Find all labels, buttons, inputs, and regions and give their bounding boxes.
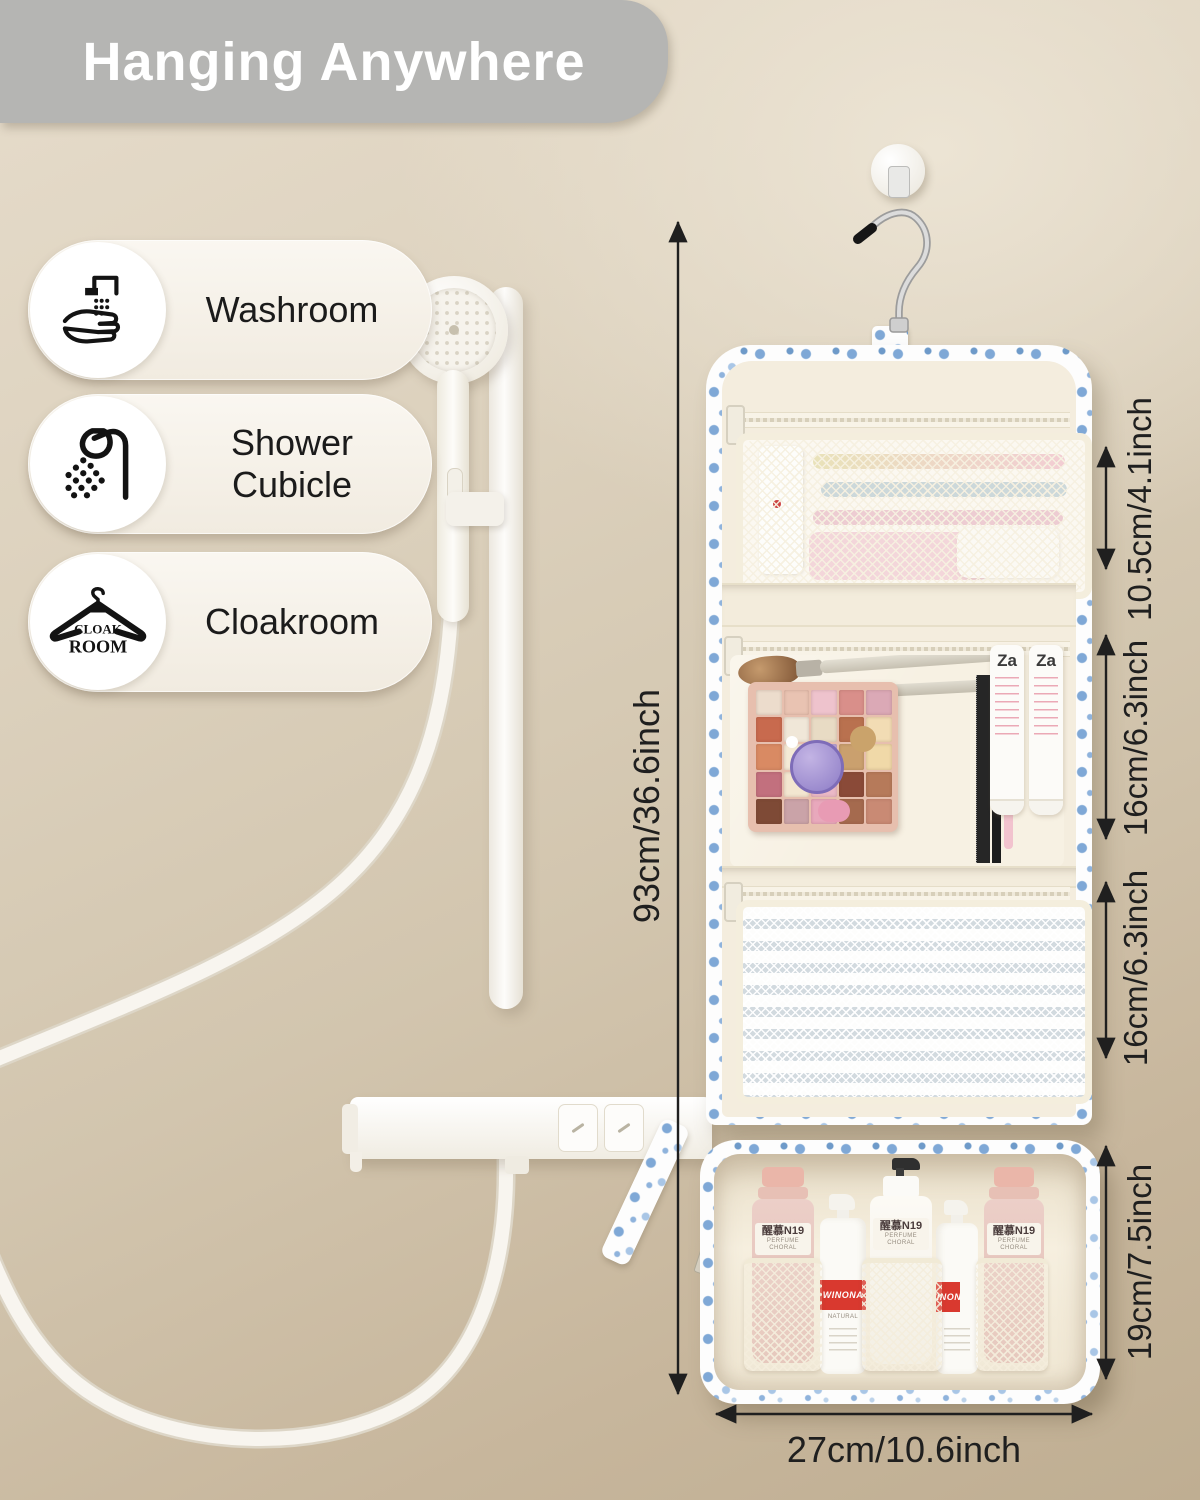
winona-sub: NATURAL — [820, 1314, 866, 1321]
eyeliner-1 — [976, 675, 990, 863]
white-tube — [957, 528, 1059, 578]
palette-swatch — [866, 799, 892, 824]
palette-swatch — [756, 772, 782, 797]
za-tube-2: Za — [1029, 645, 1063, 815]
banner: Hanging Anywhere — [0, 0, 668, 123]
top-mesh-pocket — [736, 433, 1092, 599]
lower-mesh-pocket — [736, 900, 1092, 1104]
cloak-badge-line1: CLOAK — [74, 621, 123, 636]
palette-swatch — [784, 799, 810, 824]
bottle-label: 醒慕N19 PERFUME CHORAL — [873, 1218, 929, 1250]
palette-swatch — [756, 717, 782, 742]
feature-label-shower-cubicle: Shower Cubicle — [166, 422, 432, 506]
mixer-button-2 — [604, 1104, 644, 1152]
pouch-mesh-cup-3 — [976, 1258, 1048, 1371]
fold-seam-2 — [722, 866, 1076, 888]
dim-bottom-pouch: 19cm/7.5inch — [1121, 1164, 1159, 1360]
wash-hands-icon — [30, 242, 166, 378]
palette-sticker-strawberry — [818, 800, 850, 822]
za-tube-1: Za — [990, 645, 1024, 815]
palette-sticker-flower — [786, 736, 798, 748]
palette-swatch — [756, 744, 782, 769]
feature-pill-cloakroom: CLOAK ROOM Cloakroom — [28, 552, 432, 692]
feature-pill-washroom: Washroom — [28, 240, 432, 380]
palette-sticker-ball — [790, 740, 844, 794]
mixer-hose-connector — [505, 1156, 529, 1174]
feature-label-cloakroom: Cloakroom — [166, 601, 432, 643]
coat-hanger-icon: CLOAK ROOM — [30, 554, 166, 690]
dim-lower-pocket: 16cm/6.3inch — [1117, 870, 1155, 1066]
winona-label: WINONA — [820, 1280, 866, 1310]
mixer-spout — [350, 1152, 362, 1172]
palette-swatch — [756, 799, 782, 824]
shower-head-center — [449, 325, 459, 335]
dim-top-pocket: 10.5cm/4.1inch — [1121, 397, 1159, 621]
fold-seam-1 — [722, 583, 1076, 627]
toothbrush-1 — [813, 454, 1065, 469]
palette-swatch — [811, 690, 837, 715]
pump-bottle-1: WINONA NATURAL — [820, 1206, 866, 1374]
mixer-button-1 — [558, 1104, 598, 1152]
mixer-end-cap — [342, 1104, 358, 1154]
dim-total-height: 93cm/36.6inch — [626, 689, 668, 923]
shower-handle-bracket — [446, 492, 504, 526]
striped-towel — [743, 907, 1085, 1097]
dim-middle-pocket: 16cm/6.3inch — [1117, 640, 1155, 836]
palette-swatch — [784, 690, 810, 715]
toothbrush-3 — [813, 510, 1063, 525]
palette-swatch — [839, 690, 865, 715]
banner-title: Hanging Anywhere — [82, 31, 585, 93]
za-logo: Za — [1029, 651, 1063, 671]
top-pocket-zipper — [728, 412, 1070, 428]
palette-sticker-bear — [850, 726, 876, 752]
feature-label-washroom: Washroom — [166, 289, 432, 331]
palette-swatch — [866, 772, 892, 797]
pouch-mesh-cup-2 — [862, 1258, 942, 1371]
dim-width: 27cm/10.6inch — [787, 1429, 1021, 1471]
pouch-mesh-cup-1 — [744, 1258, 822, 1371]
small-white-bottle — [759, 446, 803, 574]
toothbrush-2 — [821, 482, 1067, 497]
palette-swatch — [866, 690, 892, 715]
feature-pill-shower-cubicle: Shower Cubicle — [28, 394, 432, 534]
palette-swatch — [811, 717, 837, 742]
bottle-label: 醒慕N19 PERFUME CHORAL — [987, 1223, 1041, 1255]
wall-hook-nub — [888, 166, 910, 198]
bottle-label: 醒慕N19 PERFUME CHORAL — [755, 1223, 811, 1255]
cloak-badge-line2: ROOM — [69, 636, 128, 656]
bottle-red-dot — [773, 500, 781, 508]
product-infographic: Hanging Anywhere Washroom — [0, 0, 1200, 1500]
shower-rail — [489, 287, 523, 1009]
pump-bottle-2: WINONA — [936, 1212, 978, 1374]
shower-head-icon — [30, 396, 166, 532]
za-logo: Za — [990, 651, 1024, 671]
palette-swatch — [756, 690, 782, 715]
